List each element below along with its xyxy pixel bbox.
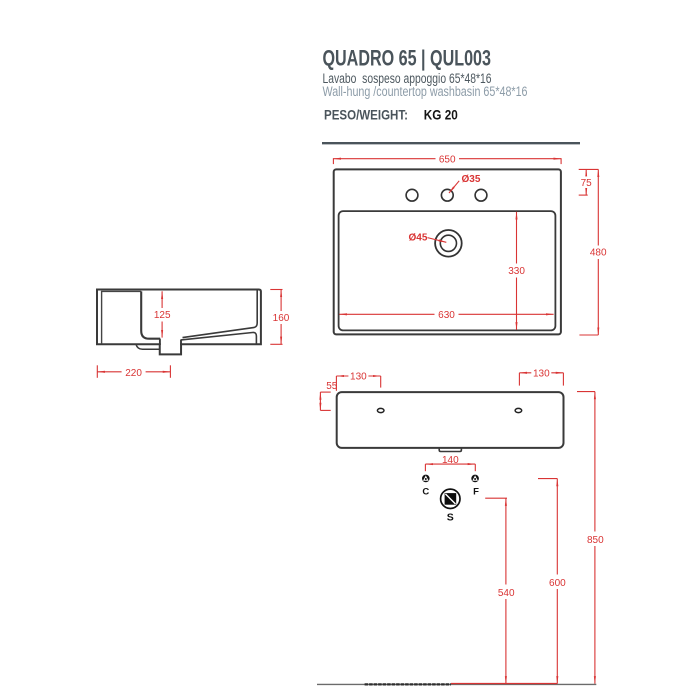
svg-text:220: 220 <box>125 368 142 379</box>
svg-text:160: 160 <box>273 313 290 324</box>
svg-text:650: 650 <box>439 154 456 165</box>
svg-text:75: 75 <box>581 178 593 189</box>
svg-text:Wall-hung /countertop washbasi: Wall-hung /countertop washbasin 65*48*16 <box>323 84 528 99</box>
svg-text:QUADRO 65 | QUL003: QUADRO 65 | QUL003 <box>323 46 492 71</box>
svg-text:C: C <box>422 487 429 498</box>
svg-text:125: 125 <box>154 310 171 321</box>
svg-text:850: 850 <box>587 535 604 546</box>
svg-text:S: S <box>447 511 454 523</box>
svg-text:480: 480 <box>590 248 607 259</box>
svg-text:55: 55 <box>326 381 338 392</box>
svg-text:KG 20: KG 20 <box>424 108 458 124</box>
svg-text:PESO/WEIGHT:: PESO/WEIGHT: <box>324 108 408 124</box>
svg-text:Ø35: Ø35 <box>462 174 481 185</box>
svg-text:330: 330 <box>508 266 525 277</box>
svg-text:630: 630 <box>438 310 455 321</box>
svg-text:140: 140 <box>442 455 459 466</box>
svg-text:600: 600 <box>549 578 566 589</box>
svg-text:130: 130 <box>533 368 550 379</box>
svg-text:540: 540 <box>498 588 515 599</box>
svg-text:Ø45: Ø45 <box>409 233 428 244</box>
svg-text:F: F <box>473 487 479 498</box>
svg-text:130: 130 <box>350 372 367 383</box>
